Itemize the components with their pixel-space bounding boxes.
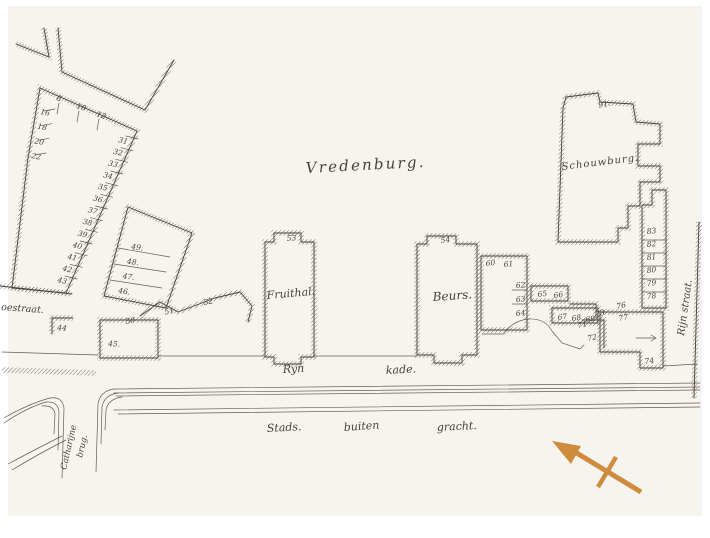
plot-number: 79 (646, 278, 657, 288)
plot-number: 46. (117, 286, 131, 297)
plot-number: 65 (537, 289, 548, 299)
street-label-ryn: Ryn (281, 362, 304, 376)
plot-number: 16 (40, 107, 51, 118)
plot-number: 49. (130, 242, 144, 253)
number-74: 74 (644, 356, 655, 366)
plot-number: 80 (646, 265, 657, 275)
number-beurs: 54 (440, 235, 451, 245)
map-canvas: Vredenburg. Fruithal. Beurs. Schouwburg.… (0, 0, 710, 538)
plot-number: 47. (121, 271, 135, 282)
plot-number: 82 (646, 239, 657, 249)
plot-number: 69 (585, 314, 596, 324)
number-44: 44 (56, 323, 68, 333)
plot-number: 60 (485, 258, 496, 268)
plot-row-strip-e-right: 626364 (516, 280, 526, 318)
plot-number: 83 (646, 226, 657, 236)
plot-number: 68 (571, 313, 582, 323)
building-label-beurs: Beurs. (431, 287, 472, 304)
plot-number: 48. (125, 257, 139, 268)
plot-number: 67 (557, 312, 568, 322)
canal-label-buiten: buiten (343, 419, 379, 434)
scanned-map-page: Vredenburg. Fruithal. Beurs. Schouwburg.… (0, 0, 710, 538)
plot-number: 64 (516, 308, 526, 318)
plot-number: 63 (516, 294, 526, 304)
plot-number: 18 (37, 122, 48, 133)
plot-number: 78 (646, 291, 657, 301)
plot-number: 50 (125, 315, 136, 326)
left-quay-band (2, 370, 96, 373)
plot-number: 51 (164, 306, 175, 317)
canal-label-stads: Stads. (266, 420, 301, 435)
number-45: 45. (107, 339, 120, 349)
plot-number: 61 (503, 259, 513, 269)
plot-number: 52 (203, 296, 214, 307)
plot-number: 81 (646, 252, 656, 262)
number-fruithal: 53 (286, 233, 297, 243)
street-label-kade: kade. (385, 362, 416, 377)
plot-number: 22 (30, 151, 42, 162)
plot-number: 62 (516, 280, 526, 290)
plot-number: 20 (33, 136, 45, 147)
number-77: 77 (618, 312, 629, 323)
street-label-oestraat: oestraat. (1, 302, 44, 316)
canal-label-gracht: gracht. (436, 419, 477, 434)
plot-number: 66 (553, 290, 564, 300)
